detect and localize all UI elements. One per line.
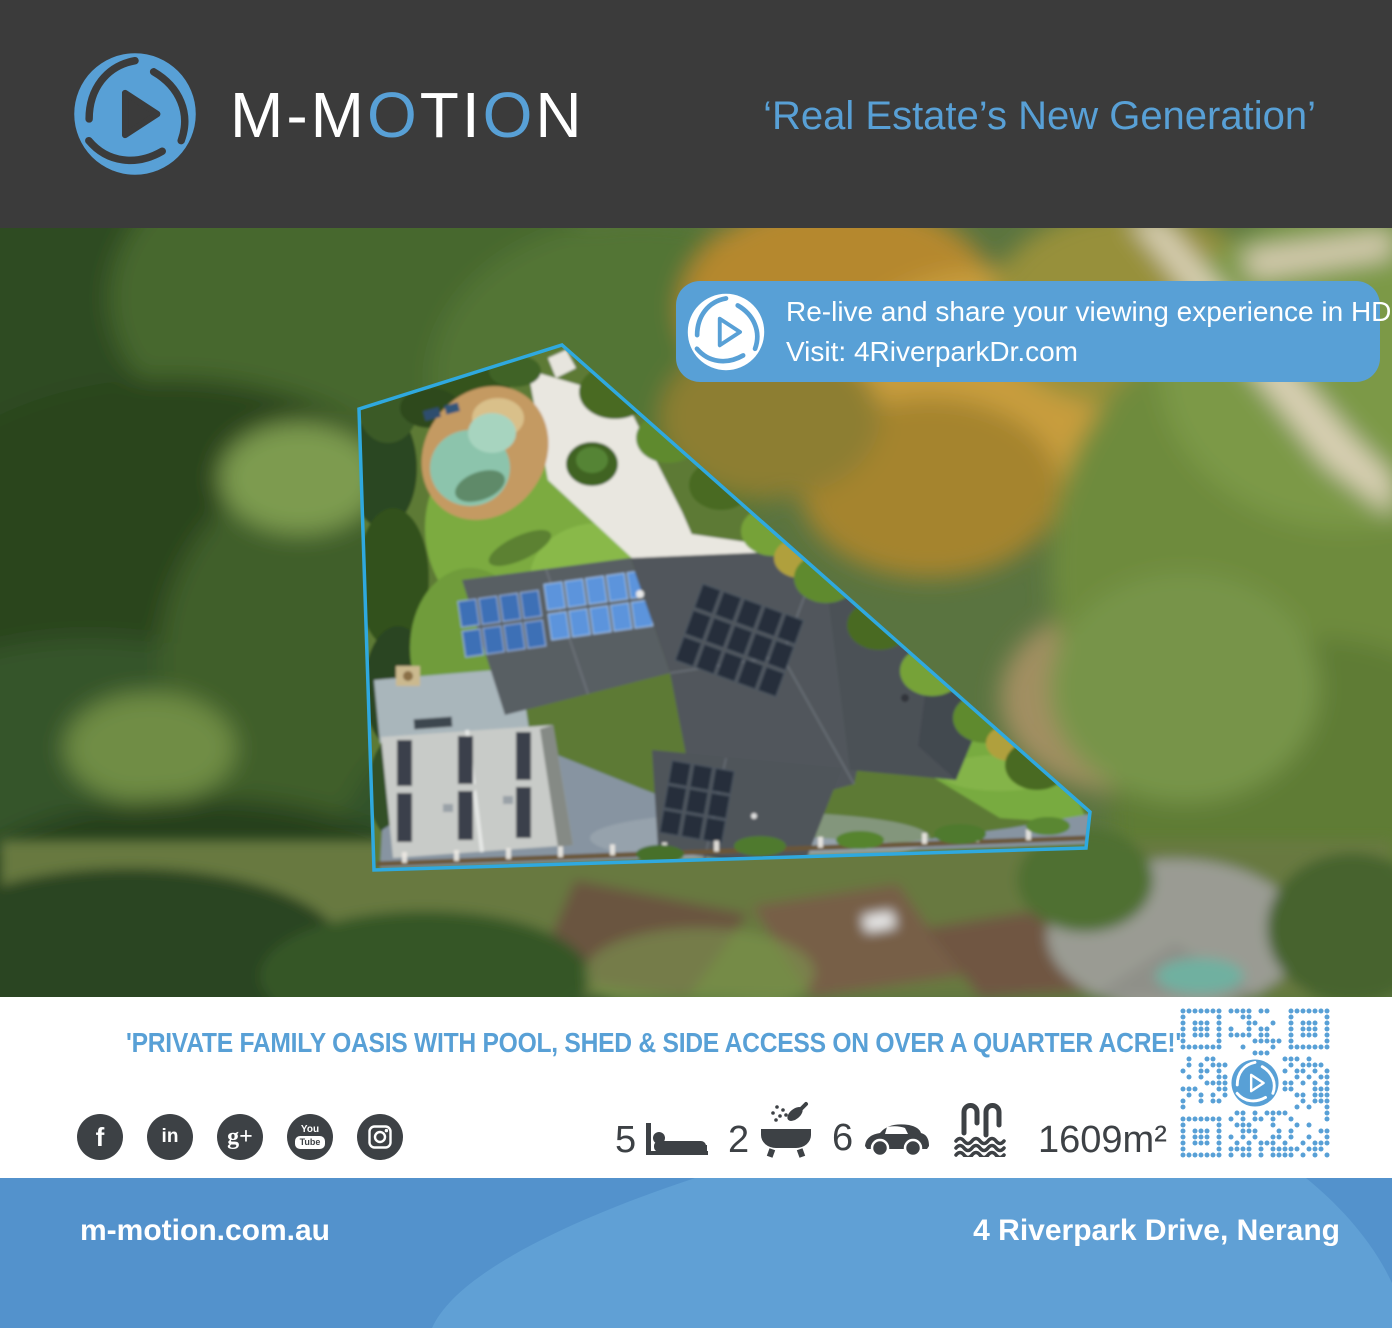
solar-panels — [660, 760, 735, 843]
beds-stat: 5 — [615, 1115, 708, 1159]
google-plus-icon[interactable]: g+ — [217, 1114, 263, 1160]
footer: m-motion.com.au 4 Riverpark Drive, Neran… — [0, 1178, 1392, 1328]
qr-code[interactable] — [1180, 1008, 1330, 1158]
brand-part: M-M — [230, 79, 367, 151]
linkedin-icon[interactable]: in — [147, 1114, 193, 1160]
brand-tagline: ‘Real Estate’s New Generation’ — [763, 94, 1316, 139]
hd-tour-banner: Re-live and share your viewing experienc… — [676, 281, 1380, 382]
land-area: 1609m² — [1038, 1119, 1167, 1162]
social-icons: f in g+ YouTube — [77, 1114, 403, 1160]
website-link[interactable]: m-motion.com.au — [80, 1214, 330, 1248]
listing-headline: 'PRIVATE FAMILY OASIS WITH POOL, SHED & … — [126, 1027, 1094, 1059]
brand-o-icon: O — [367, 79, 420, 151]
beds-count: 5 — [615, 1121, 636, 1159]
youtube-icon[interactable]: YouTube — [287, 1114, 333, 1160]
bed-icon — [644, 1115, 708, 1159]
flyer-page: M-MOTION ‘Real Estate’s New Generation’ — [0, 0, 1392, 1328]
brand-part: N — [535, 79, 584, 151]
m-motion-logo-icon — [73, 52, 197, 176]
pool-stat — [952, 1099, 1006, 1157]
baths-count: 2 — [728, 1121, 749, 1159]
cars-count: 6 — [832, 1119, 853, 1157]
aerial-photo: Re-live and share your viewing experienc… — [0, 228, 1392, 997]
car-icon — [861, 1115, 931, 1157]
footer-swoosh — [0, 1178, 1392, 1328]
instagram-icon[interactable] — [357, 1114, 403, 1160]
pool-icon — [952, 1099, 1006, 1157]
shed — [381, 725, 573, 858]
m-motion-logo-icon — [687, 293, 765, 371]
property-address: 4 Riverpark Drive, Nerang — [973, 1214, 1340, 1248]
bath-icon — [757, 1101, 815, 1159]
m-motion-logo-icon — [1231, 1059, 1279, 1107]
brand-part: TI — [420, 79, 483, 151]
facebook-icon[interactable]: f — [77, 1114, 123, 1160]
brand-wordmark: M-MOTION — [230, 78, 585, 152]
cars-stat: 6 — [832, 1115, 931, 1157]
brand-o-icon: O — [483, 79, 536, 151]
banner-line1: Re-live and share your viewing experienc… — [786, 292, 1366, 332]
banner-tour-url[interactable]: Visit: 4RiverparkDr.com — [786, 332, 1366, 372]
info-band: 'PRIVATE FAMILY OASIS WITH POOL, SHED & … — [0, 997, 1392, 1178]
header: M-MOTION ‘Real Estate’s New Generation’ — [0, 0, 1392, 228]
baths-stat: 2 — [728, 1101, 815, 1159]
